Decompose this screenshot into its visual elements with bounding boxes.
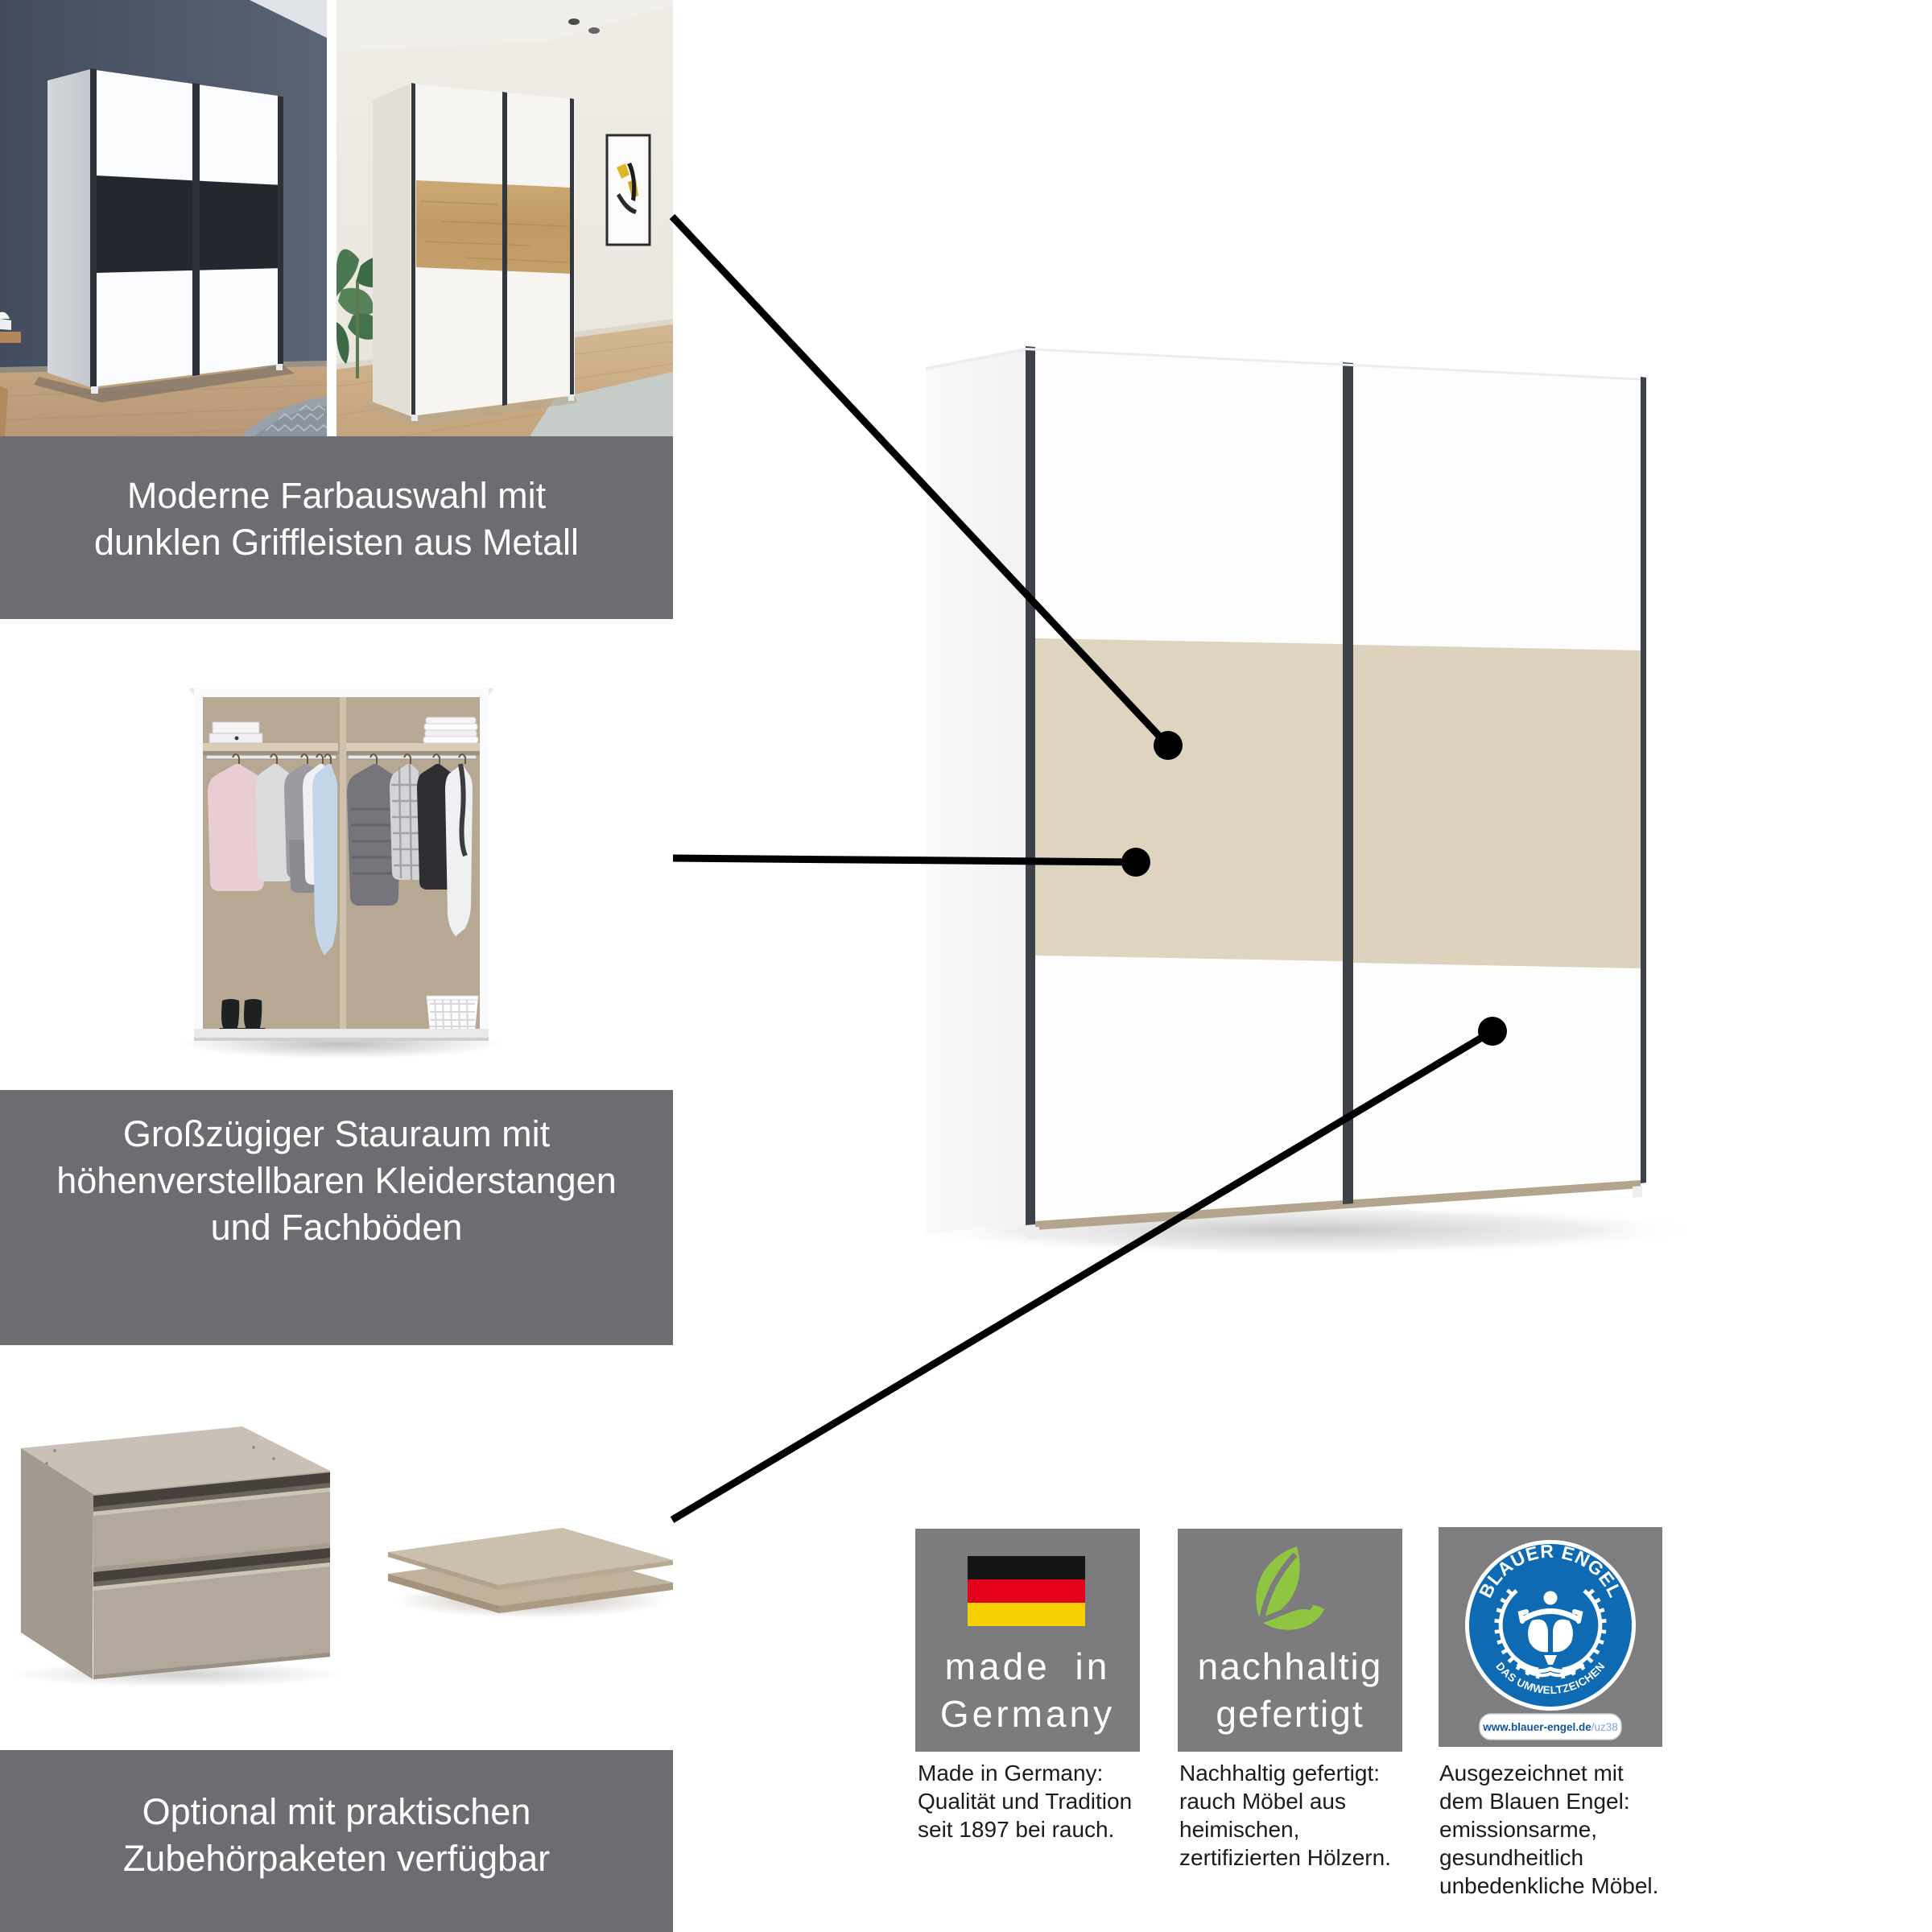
svg-text:www.blauer-engel.de/uz38: www.blauer-engel.de/uz38 [1482, 1721, 1618, 1733]
